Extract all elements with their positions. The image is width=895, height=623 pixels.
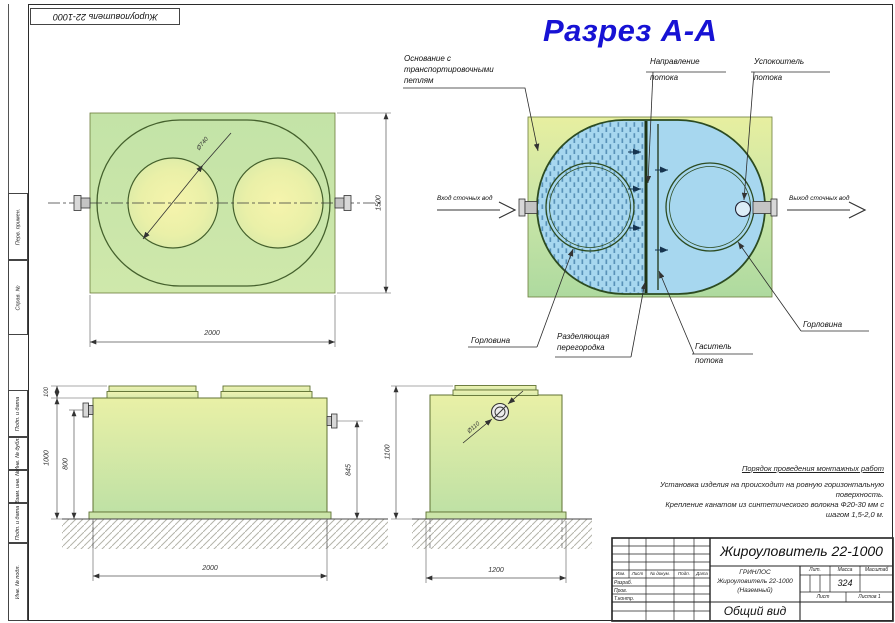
callout-flow-direction: Направление потока — [650, 56, 700, 83]
margin-box-inv-dupl: Инв. № дубл. — [8, 437, 28, 470]
titleblock-sheets-label: Листов 1 — [846, 594, 893, 600]
titleblock-org: ГРИНЛОС Жироуловитель 22-1000 (Наземный) — [710, 568, 800, 595]
dim-side-base: 1200 — [456, 567, 536, 574]
dim-front-outlet: 845 — [346, 464, 353, 476]
titleblock-col-list: Лист — [629, 571, 646, 576]
dim-plan-length: 2000 — [172, 330, 252, 337]
callout-flow-calmer: Успокоитель потока — [754, 56, 804, 83]
callout-divider: Разделяющая перегородка — [557, 331, 609, 353]
callout-base: Основание с транспортировочными петлям — [404, 53, 494, 86]
margin-box-sign-date-1: Подп. и дата — [8, 390, 28, 437]
titleblock-col-podp: Подп. — [674, 571, 694, 576]
callout-neck-right: Горловина — [803, 319, 842, 330]
titleblock-mass-value: 324 — [830, 578, 860, 588]
dim-front-inlet: 800 — [63, 458, 70, 470]
section-title: Разрез А-А — [543, 13, 717, 49]
titleblock-mass-label: Масса — [830, 567, 860, 573]
titleblock-doc-name: Жироуловитель 22-1000 — [712, 543, 891, 559]
corner-stamp: Жироуловитель 22-1000 — [30, 8, 180, 25]
dim-front-length: 2000 — [170, 565, 250, 572]
titleblock-row-prov: Пров. — [614, 588, 627, 594]
titleblock-row-tkontr: Т.контр. — [614, 596, 634, 602]
corner-stamp-text: Жироуловитель 22-1000 — [53, 12, 158, 22]
margin-box-inv-orig: Инв. № подл. — [8, 543, 28, 621]
mounting-notes: Порядок проведения монтажных работ Устан… — [614, 464, 884, 520]
titleblock-scale-label: Масштаб — [860, 567, 893, 573]
dim-side-height: 1100 — [385, 444, 392, 459]
margin-box-ref-number: Справ. № — [8, 260, 28, 335]
margin-box-repl-inv: Взам. инв. № — [8, 470, 28, 503]
margin-box-sign-date-2: Подп. и дата — [8, 503, 28, 543]
dim-front-lid: 100 — [44, 387, 50, 397]
drawing-sheet: Жироуловитель 22-1000 Перв. примен. Спра… — [0, 0, 895, 623]
label-outlet: Выход сточных вод — [789, 195, 849, 203]
margin-box-first-use: Перв. примен. — [8, 193, 28, 260]
callout-damper: Гаситель потока — [695, 341, 732, 366]
titleblock-view-name: Общий вид — [710, 604, 800, 618]
titleblock-col-data: Дата — [694, 571, 710, 576]
titleblock-col-docnum: № докум. — [646, 571, 674, 576]
dim-front-height: 1000 — [44, 450, 51, 466]
callout-neck-left: Горловина — [471, 335, 510, 346]
label-inlet: Вход сточных вод — [437, 195, 492, 203]
drawing-frame — [28, 4, 893, 621]
notes-heading: Порядок проведения монтажных работ — [614, 464, 884, 474]
titleblock-col-izm: Изм. — [612, 571, 629, 576]
titleblock-lit-label: Лит. — [800, 567, 830, 573]
titleblock-row-razrab: Разраб. — [614, 580, 632, 586]
titleblock-sheet-label: Лист — [800, 594, 846, 600]
dim-plan-width: 1500 — [376, 195, 383, 211]
